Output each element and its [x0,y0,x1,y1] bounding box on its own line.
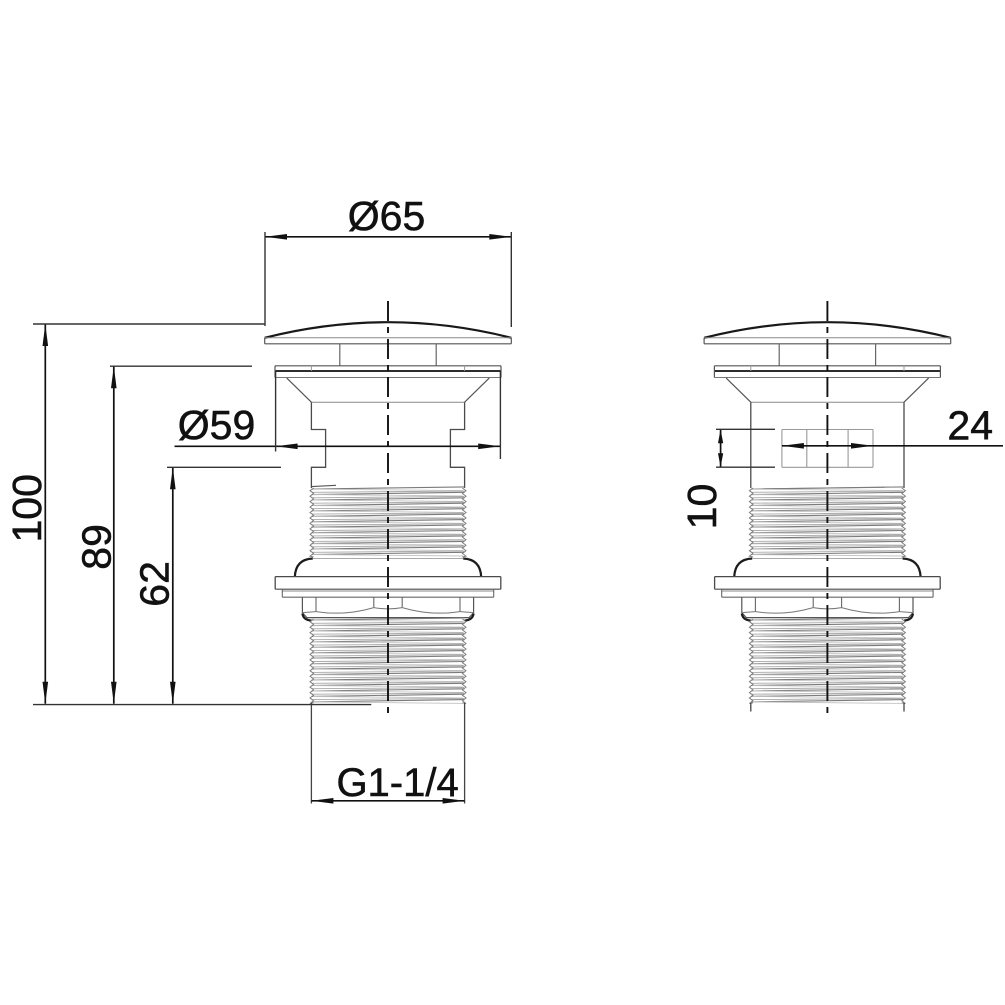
svg-text:24: 24 [947,403,993,449]
svg-text:89: 89 [73,524,119,570]
svg-text:62: 62 [131,561,177,607]
svg-text:G1-1/4: G1-1/4 [336,761,458,805]
svg-text:Ø59: Ø59 [178,402,256,448]
svg-text:10: 10 [679,484,725,530]
svg-text:100: 100 [4,474,50,542]
svg-text:Ø65: Ø65 [348,193,426,239]
